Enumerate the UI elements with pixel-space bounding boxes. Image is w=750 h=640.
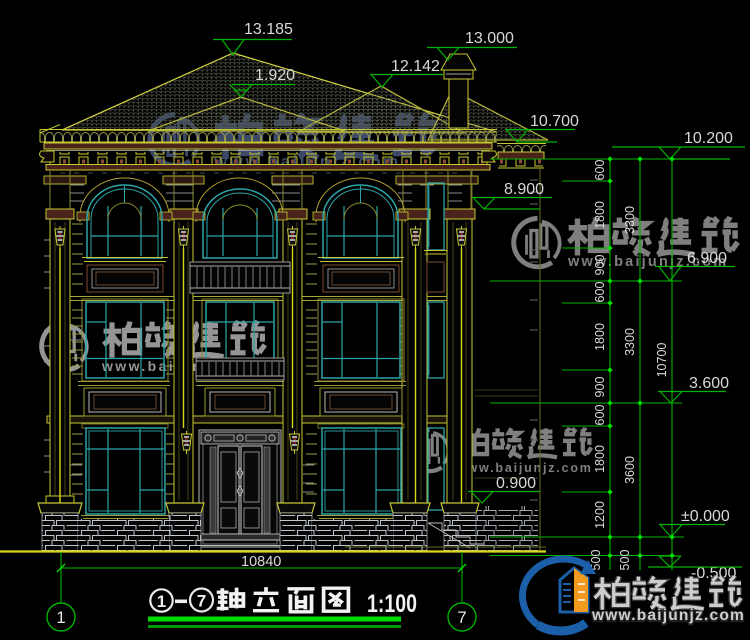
svg-text:13.185: 13.185 bbox=[244, 21, 293, 38]
svg-text:1200: 1200 bbox=[593, 501, 607, 529]
svg-text:600: 600 bbox=[593, 160, 607, 181]
svg-text:6.900: 6.900 bbox=[687, 250, 727, 267]
svg-text:500: 500 bbox=[618, 550, 632, 571]
svg-text:12.142: 12.142 bbox=[391, 58, 440, 75]
svg-text:3300: 3300 bbox=[623, 328, 637, 356]
svg-text:1800: 1800 bbox=[593, 445, 607, 473]
svg-text:www.baijunjz.com: www.baijunjz.com bbox=[591, 607, 745, 624]
svg-text:1800: 1800 bbox=[593, 323, 607, 351]
svg-text:7: 7 bbox=[197, 592, 206, 611]
svg-text:1: 1 bbox=[56, 608, 65, 627]
svg-text:10840: 10840 bbox=[241, 554, 281, 570]
svg-text:900: 900 bbox=[593, 377, 607, 398]
svg-text:1.920: 1.920 bbox=[255, 67, 295, 84]
svg-text:10.200: 10.200 bbox=[684, 130, 733, 147]
svg-text:7: 7 bbox=[457, 608, 466, 627]
svg-text:8.900: 8.900 bbox=[504, 181, 544, 198]
svg-text:0.900: 0.900 bbox=[496, 475, 536, 492]
svg-text:3300: 3300 bbox=[623, 206, 637, 234]
svg-text:10700: 10700 bbox=[655, 343, 669, 378]
svg-text:1:100: 1:100 bbox=[367, 590, 417, 618]
svg-text:600: 600 bbox=[593, 405, 607, 426]
svg-text:±0.000: ±0.000 bbox=[681, 508, 730, 525]
svg-text:13.000: 13.000 bbox=[465, 30, 514, 47]
svg-text:3600: 3600 bbox=[623, 456, 637, 484]
svg-text:900: 900 bbox=[593, 255, 607, 276]
svg-text:600: 600 bbox=[593, 282, 607, 303]
svg-text:1: 1 bbox=[157, 592, 166, 611]
svg-text:www.baijunjz.com: www.baijunjz.com bbox=[455, 461, 593, 475]
svg-text:1800: 1800 bbox=[593, 201, 607, 229]
svg-text:3.600: 3.600 bbox=[689, 375, 729, 392]
svg-text:10.700: 10.700 bbox=[530, 113, 579, 130]
